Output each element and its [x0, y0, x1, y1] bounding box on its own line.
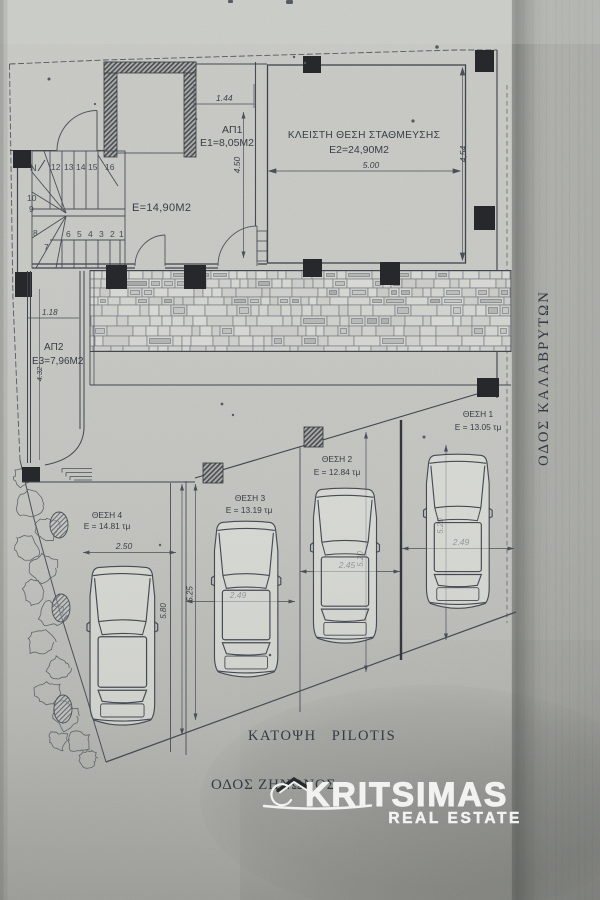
svg-text:ΑΠ1: ΑΠ1 — [222, 124, 243, 136]
svg-text:ΚΑΤΟΨΗ PILOTIS: ΚΑΤΟΨΗ PILOTIS — [248, 728, 396, 744]
svg-text:4,54: 4,54 — [458, 145, 468, 162]
svg-text:ΟΔΟΣ ΚΑΛΑΒΡΥΤΩΝ: ΟΔΟΣ ΚΑΛΑΒΡΥΤΩΝ — [536, 290, 552, 466]
svg-text:REAL ESTATE: REAL ESTATE — [388, 810, 522, 827]
svg-text:1.18: 1.18 — [42, 308, 58, 317]
svg-text:5.80: 5.80 — [159, 603, 168, 619]
svg-text:ΑΠ2: ΑΠ2 — [44, 342, 64, 353]
svg-text:4.32: 4.32 — [35, 366, 44, 381]
svg-text:13: 13 — [64, 162, 74, 172]
svg-text:Ε = 14.81 τμ: Ε = 14.81 τμ — [84, 521, 131, 531]
svg-text:7: 7 — [44, 242, 49, 252]
svg-text:15: 15 — [88, 162, 98, 172]
svg-text:6: 6 — [66, 229, 71, 239]
svg-text:Ε=14,90Μ2: Ε=14,90Μ2 — [132, 202, 191, 214]
svg-text:Ε1=8,05Μ2: Ε1=8,05Μ2 — [200, 137, 254, 149]
svg-text:Ε2=24,90Μ2: Ε2=24,90Μ2 — [329, 144, 389, 156]
svg-text:5: 5 — [77, 229, 82, 239]
svg-text:16: 16 — [105, 162, 115, 172]
svg-text:12: 12 — [51, 162, 61, 172]
svg-text:Ε = 12.84 τμ: Ε = 12.84 τμ — [314, 467, 361, 477]
svg-text:5.25: 5.25 — [186, 586, 195, 602]
svg-text:10: 10 — [27, 193, 37, 203]
svg-text:2.50: 2.50 — [115, 541, 133, 551]
svg-text:2: 2 — [110, 229, 115, 239]
svg-text:4.50: 4.50 — [232, 156, 242, 173]
svg-text:ΘΕΣΗ 4: ΘΕΣΗ 4 — [92, 510, 123, 520]
svg-text:1: 1 — [119, 229, 124, 239]
svg-text:5.00: 5.00 — [363, 160, 380, 170]
svg-text:ΚΛΕΙΣΤΗ ΘΕΣΗ ΣΤΑΘΜΕΥΣΗΣ: ΚΛΕΙΣΤΗ ΘΕΣΗ ΣΤΑΘΜΕΥΣΗΣ — [288, 130, 440, 141]
svg-text:Ε = 13.19 τμ: Ε = 13.19 τμ — [226, 505, 273, 515]
svg-text:ΘΕΣΗ 1: ΘΕΣΗ 1 — [463, 409, 494, 419]
svg-text:9: 9 — [29, 204, 34, 214]
svg-text:ΘΕΣΗ 2: ΘΕΣΗ 2 — [322, 454, 353, 464]
svg-text:1.44: 1.44 — [216, 93, 233, 103]
svg-text:8: 8 — [33, 228, 38, 238]
svg-text:ΘΕΣΗ 3: ΘΕΣΗ 3 — [235, 493, 266, 503]
svg-text:3: 3 — [99, 229, 104, 239]
svg-text:14: 14 — [76, 162, 86, 172]
svg-text:Ε = 13.05 τμ: Ε = 13.05 τμ — [455, 422, 502, 432]
svg-text:4: 4 — [88, 229, 93, 239]
svg-text:KRITSIMAS: KRITSIMAS — [305, 776, 508, 814]
